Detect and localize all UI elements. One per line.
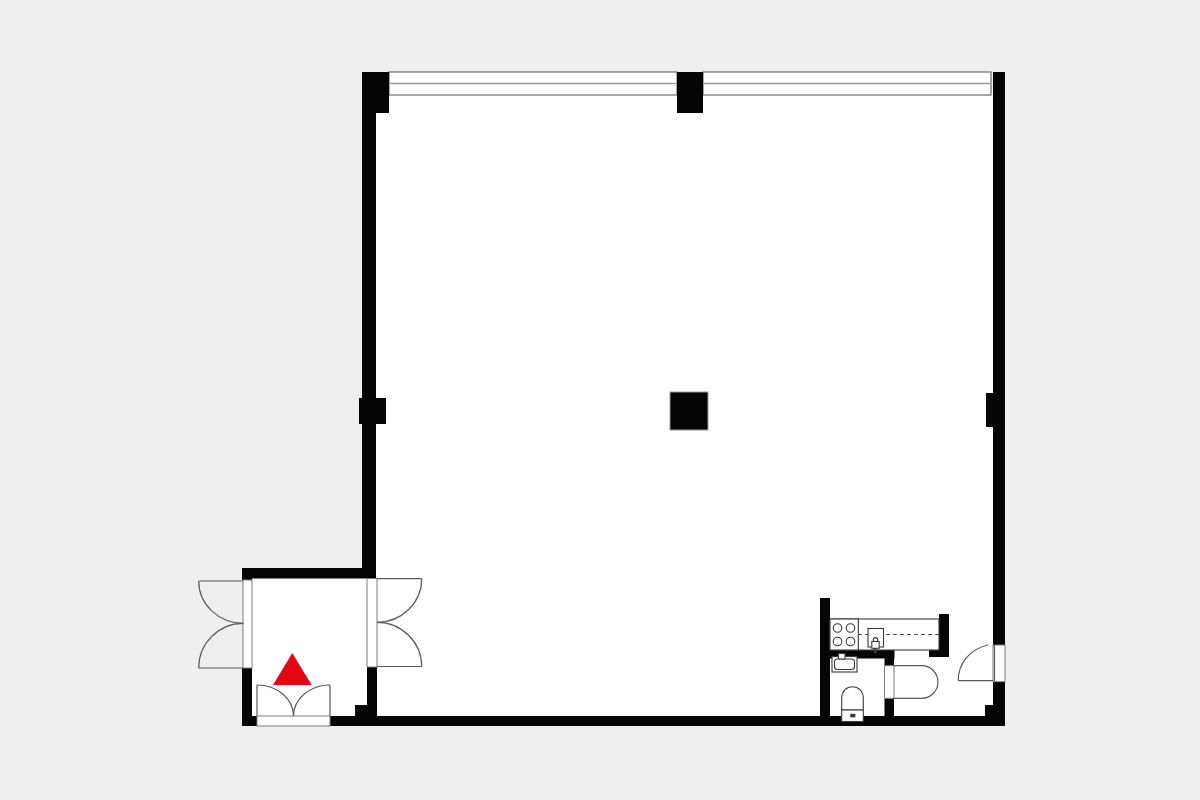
- vestibule-bottom-door-frame: [257, 716, 330, 726]
- kitchen-sink-faucet: [872, 642, 879, 649]
- structural-column: [670, 392, 708, 430]
- vestibule-right-wall-foot: [355, 705, 377, 716]
- bathroom-sink-inner: [835, 659, 855, 670]
- left-wall: [362, 72, 376, 578]
- stove-burner-icon: [846, 624, 855, 633]
- stove: [830, 619, 858, 650]
- stove-burner-icon: [846, 637, 855, 646]
- entry-door-frame: [243, 580, 252, 668]
- entry-door-swing-top: [199, 581, 244, 623]
- left-wall-pier: [359, 398, 386, 424]
- entry-door-swing-bottom: [199, 623, 244, 668]
- bathroom-sink-faucet: [839, 654, 846, 660]
- floor-plan-svg: [0, 0, 1200, 800]
- floor-plan-canvas: [0, 0, 1200, 800]
- kitchen-left-wall: [820, 598, 830, 726]
- vestibule-floor: [243, 578, 376, 716]
- vestibule-left-wall-upper: [242, 568, 252, 580]
- right-corner-step: [985, 705, 993, 716]
- stove-burner-icon: [833, 637, 842, 646]
- vestibule-inner-door-frame: [367, 579, 377, 668]
- right-wall-pier: [986, 393, 993, 427]
- bottom-wall-main: [330, 716, 1005, 726]
- vestibule-top-wall: [242, 568, 376, 579]
- right-wall-upper: [993, 72, 1005, 645]
- bathroom-right-wall-upper: [885, 650, 895, 666]
- toilet-flush-button: [850, 714, 855, 718]
- toilet-bowl: [842, 687, 864, 710]
- vestibule-left-wall-lower: [242, 668, 252, 726]
- bathroom-door-frame: [885, 666, 895, 699]
- stove-burner-icon: [833, 624, 842, 633]
- bathroom-right-wall-lower: [885, 698, 895, 716]
- top-wall-pier: [677, 72, 703, 113]
- kitchen-sink-faucet-stem: [874, 648, 877, 653]
